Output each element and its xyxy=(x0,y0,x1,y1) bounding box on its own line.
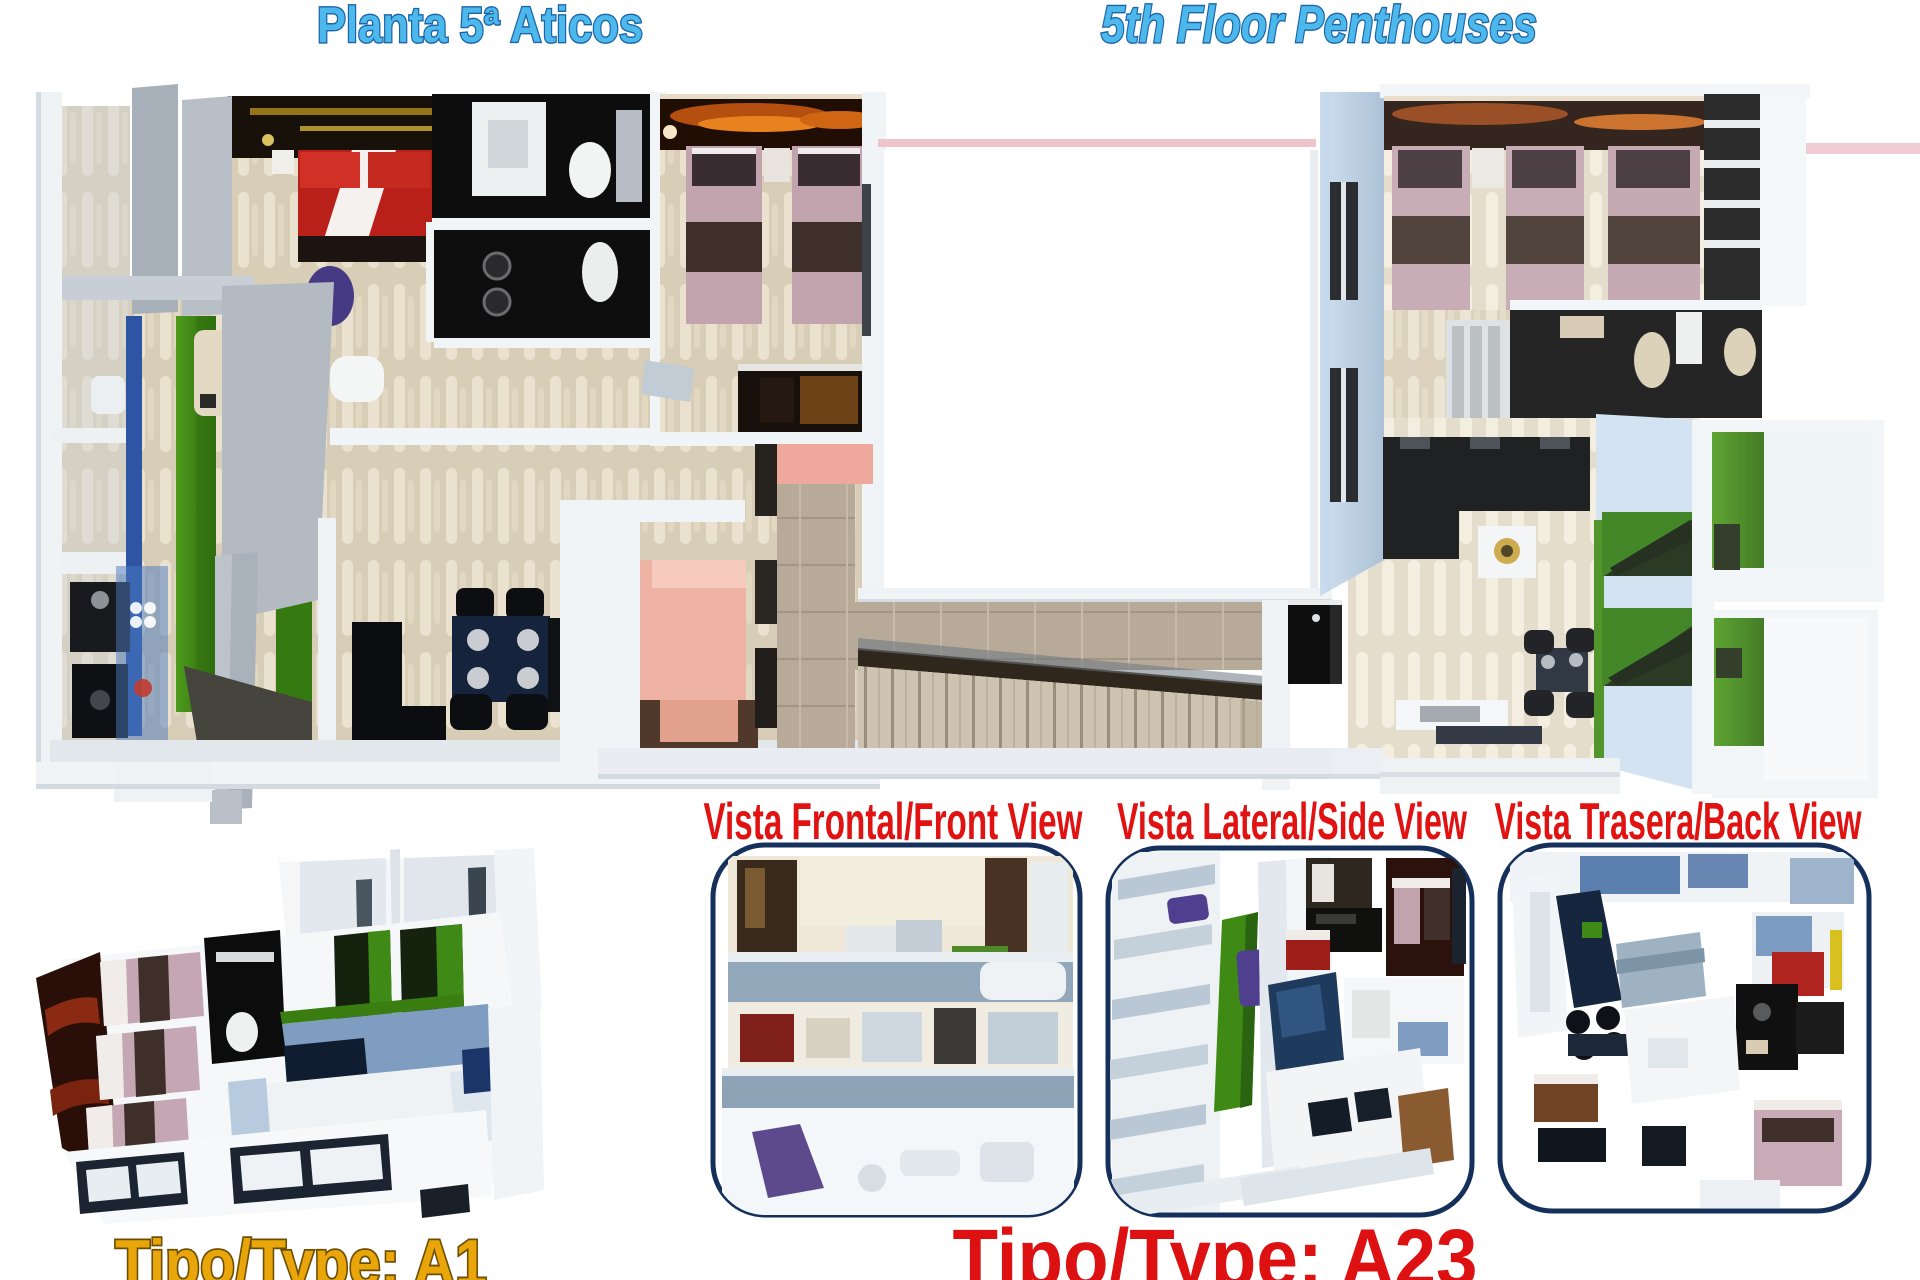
svg-text:Tipo/Type: A23: Tipo/Type: A23 xyxy=(953,1213,1478,1280)
svg-text:5th Floor Penthouses: 5th Floor Penthouses xyxy=(1101,0,1537,54)
svg-text:Vista Trasera/Back View: Vista Trasera/Back View xyxy=(1495,793,1862,851)
svg-text:Tipo/Type: A1: Tipo/Type: A1 xyxy=(115,1226,487,1280)
svg-text:Planta 5ª Aticos: Planta 5ª Aticos xyxy=(317,0,643,53)
svg-text:Vista Frontal/Front View: Vista Frontal/Front View xyxy=(704,793,1083,851)
svg-text:Vista Lateral/Side View: Vista Lateral/Side View xyxy=(1117,793,1467,851)
